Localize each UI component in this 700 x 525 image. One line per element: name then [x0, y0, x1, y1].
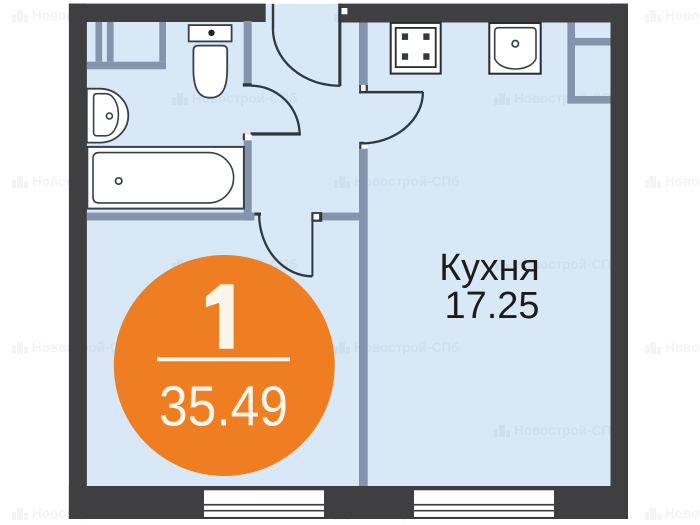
svg-text:Новострой-СПб: Новострой-СПб — [354, 340, 459, 355]
svg-text:Кухня: Кухня — [439, 247, 540, 289]
svg-text:Новострой-СПб: Новострой-СПб — [354, 174, 459, 189]
svg-text:Новострой-СПб: Новострой-СПб — [665, 506, 700, 521]
svg-text:Новострой-СПб: Новострой-СПб — [665, 340, 700, 355]
svg-text:Новострой-СПб: Новострой-СПб — [665, 8, 700, 23]
svg-text:35.49: 35.49 — [159, 375, 288, 438]
svg-text:17.25: 17.25 — [445, 285, 540, 327]
svg-text:Новострой-СПб: Новострой-СПб — [665, 174, 700, 189]
svg-text:Новострой-СПб: Новострой-СПб — [514, 423, 619, 438]
